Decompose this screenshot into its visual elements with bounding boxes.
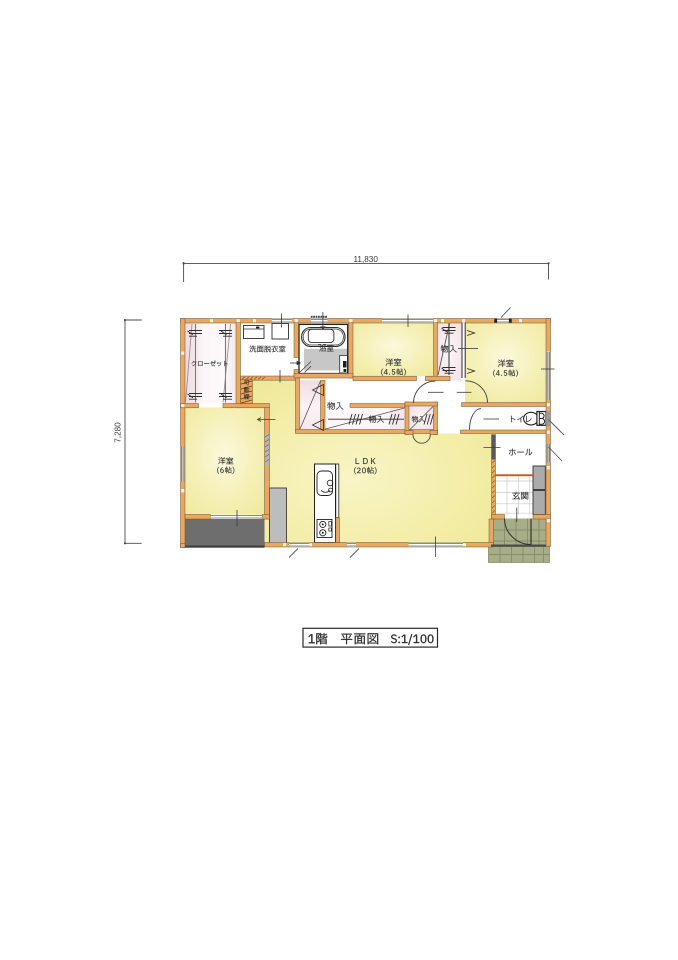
svg-text:7,280: 7,280: [114, 422, 123, 443]
svg-text:11,830: 11,830: [353, 255, 378, 264]
